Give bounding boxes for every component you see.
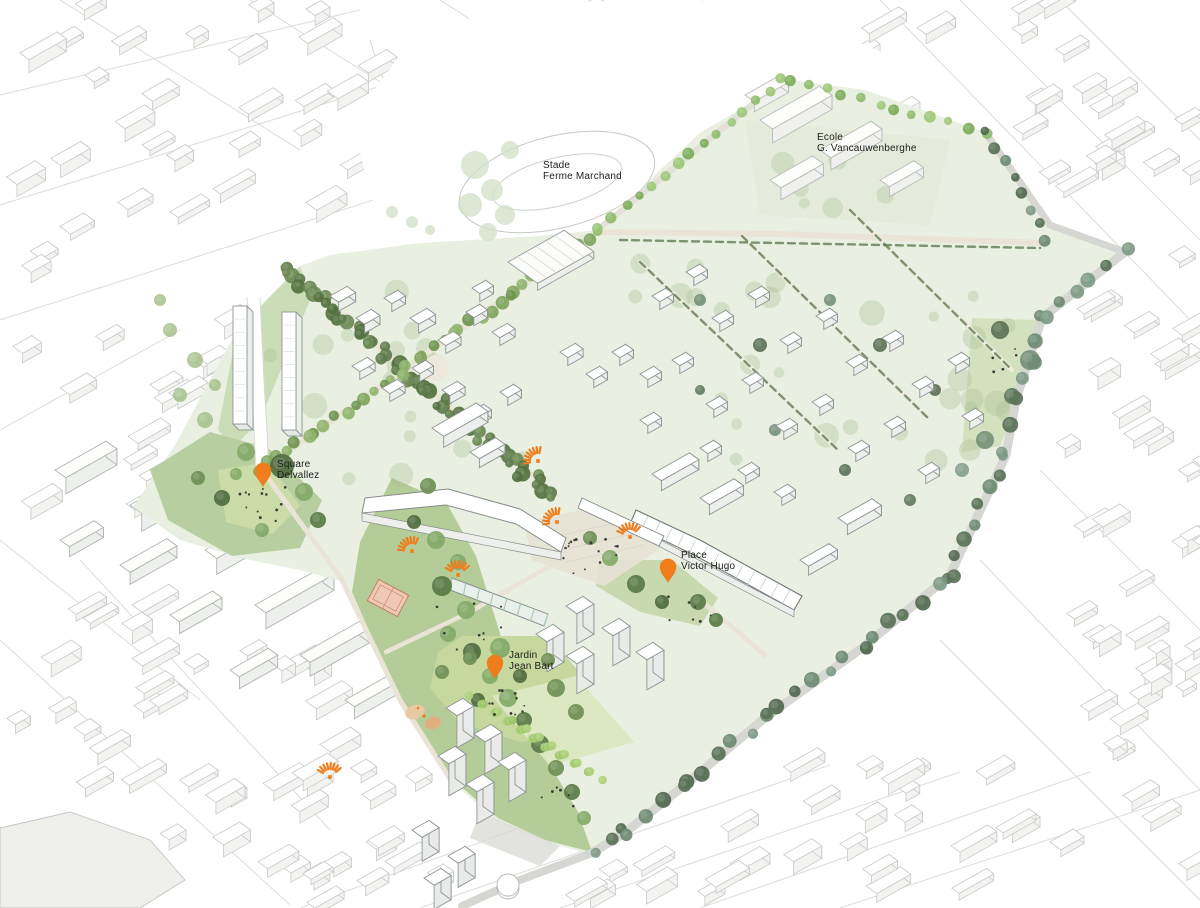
masterplan-canvas: StadeFerme MarchandEcoleG. Vancauwenberg… [0, 0, 1200, 908]
masterplan-illustration: StadeFerme MarchandEcoleG. Vancauwenberg… [0, 0, 1200, 908]
